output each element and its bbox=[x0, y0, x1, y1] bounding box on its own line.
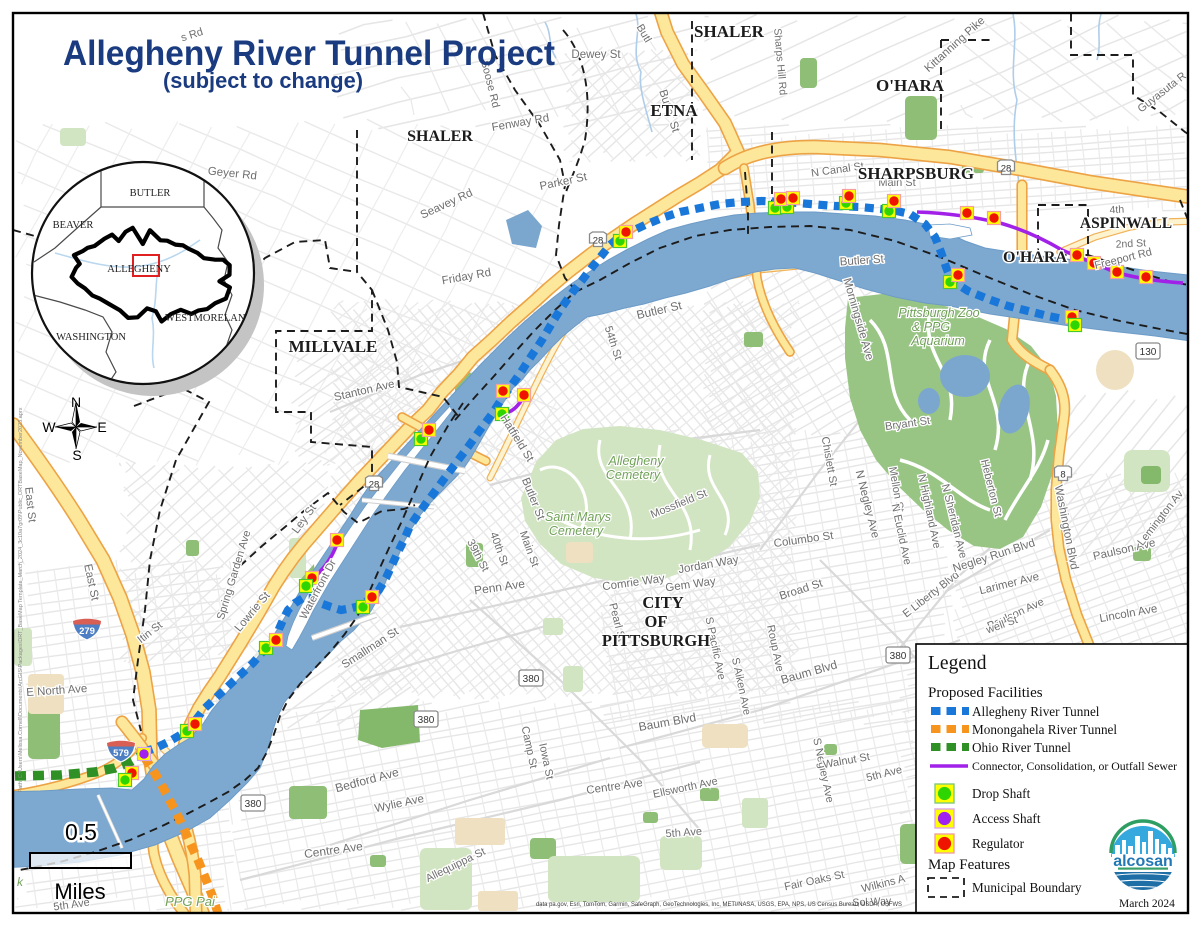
svg-text:PPG Pai: PPG Pai bbox=[165, 894, 216, 909]
svg-text:PITTSBURGH: PITTSBURGH bbox=[602, 631, 710, 650]
svg-text:WESTMORELAND: WESTMORELAND bbox=[165, 313, 253, 324]
svg-text:March 2024: March 2024 bbox=[1119, 898, 1175, 910]
svg-text:Map Features: Map Features bbox=[928, 857, 1010, 873]
svg-text:Access Shaft: Access Shaft bbox=[972, 811, 1041, 826]
svg-text:BEAVER: BEAVER bbox=[53, 220, 94, 231]
svg-text:CITY: CITY bbox=[642, 593, 683, 612]
svg-text:0.5: 0.5 bbox=[65, 819, 97, 845]
svg-text:SHALER: SHALER bbox=[694, 22, 765, 41]
svg-text:Connector, Consolidation, or O: Connector, Consolidation, or Outfall Sew… bbox=[972, 759, 1177, 773]
svg-text:Municipal Boundary: Municipal Boundary bbox=[972, 880, 1082, 895]
svg-text:28: 28 bbox=[369, 480, 380, 491]
svg-text:E: E bbox=[97, 419, 106, 435]
svg-text:Pittsburgh Zoo: Pittsburgh Zoo bbox=[898, 306, 979, 320]
svg-text:W: W bbox=[42, 419, 56, 435]
svg-text:SHARPSBURG: SHARPSBURG bbox=[858, 164, 974, 183]
svg-text:380: 380 bbox=[245, 799, 262, 810]
svg-text:Cemetery: Cemetery bbox=[606, 468, 661, 482]
svg-text:5th Ave: 5th Ave bbox=[665, 826, 702, 841]
svg-text:130: 130 bbox=[1140, 347, 1157, 358]
svg-text:ETNA: ETNA bbox=[650, 101, 698, 120]
svg-text:O'HARA: O'HARA bbox=[876, 76, 945, 95]
svg-text:Saint Marys: Saint Marys bbox=[545, 510, 611, 524]
svg-text:OF: OF bbox=[645, 612, 668, 631]
svg-text:8: 8 bbox=[1060, 470, 1065, 481]
svg-text:Allegheny: Allegheny bbox=[608, 454, 665, 468]
svg-text:ASPINWALL: ASPINWALL bbox=[1080, 215, 1172, 232]
svg-text:Allegheny River Tunnel: Allegheny River Tunnel bbox=[972, 704, 1100, 719]
svg-text:& PPG: & PPG bbox=[912, 320, 950, 334]
svg-text:k: k bbox=[17, 875, 24, 889]
svg-text:380: 380 bbox=[523, 674, 540, 685]
svg-text:Miles: Miles bbox=[54, 879, 105, 904]
svg-text:data pa.gov, Esri, TomTom, Gar: data pa.gov, Esri, TomTom, Garmin, SafeG… bbox=[536, 902, 902, 908]
svg-text:28: 28 bbox=[1001, 164, 1012, 175]
svg-text:Proposed Facilities: Proposed Facilities bbox=[928, 685, 1043, 701]
svg-text:O'HARA: O'HARA bbox=[1003, 249, 1067, 266]
svg-text:Path: C:\Users\Melissa.Cornell: Path: C:\Users\Melissa.Cornell\Documents… bbox=[18, 407, 24, 792]
svg-text:MILLVALE: MILLVALE bbox=[289, 337, 378, 356]
svg-text:Legend: Legend bbox=[928, 653, 987, 674]
svg-text:Drop Shaft: Drop Shaft bbox=[972, 786, 1031, 801]
svg-text:28: 28 bbox=[593, 236, 604, 247]
svg-text:279: 279 bbox=[79, 626, 95, 637]
svg-text:(subject to change): (subject to change) bbox=[163, 68, 363, 93]
svg-text:Dewey St: Dewey St bbox=[571, 49, 621, 61]
svg-text:Ohio River Tunnel: Ohio River Tunnel bbox=[972, 740, 1071, 755]
svg-text:380: 380 bbox=[418, 715, 435, 726]
svg-text:Monongahela River Tunnel: Monongahela River Tunnel bbox=[972, 722, 1117, 737]
svg-text:579: 579 bbox=[113, 748, 129, 759]
svg-text:Cemetery: Cemetery bbox=[549, 524, 604, 538]
svg-text:Regulator: Regulator bbox=[972, 836, 1025, 851]
svg-text:SHALER: SHALER bbox=[407, 128, 473, 145]
svg-text:Aquarium: Aquarium bbox=[910, 334, 965, 348]
svg-text:alcosan: alcosan bbox=[1113, 853, 1173, 870]
svg-text:BUTLER: BUTLER bbox=[130, 188, 171, 199]
svg-text:S: S bbox=[72, 447, 81, 463]
svg-text:N: N bbox=[71, 394, 81, 410]
svg-text:WASHINGTON: WASHINGTON bbox=[56, 332, 126, 343]
svg-text:ALLEGHENY: ALLEGHENY bbox=[107, 264, 171, 275]
svg-text:380: 380 bbox=[890, 651, 907, 662]
